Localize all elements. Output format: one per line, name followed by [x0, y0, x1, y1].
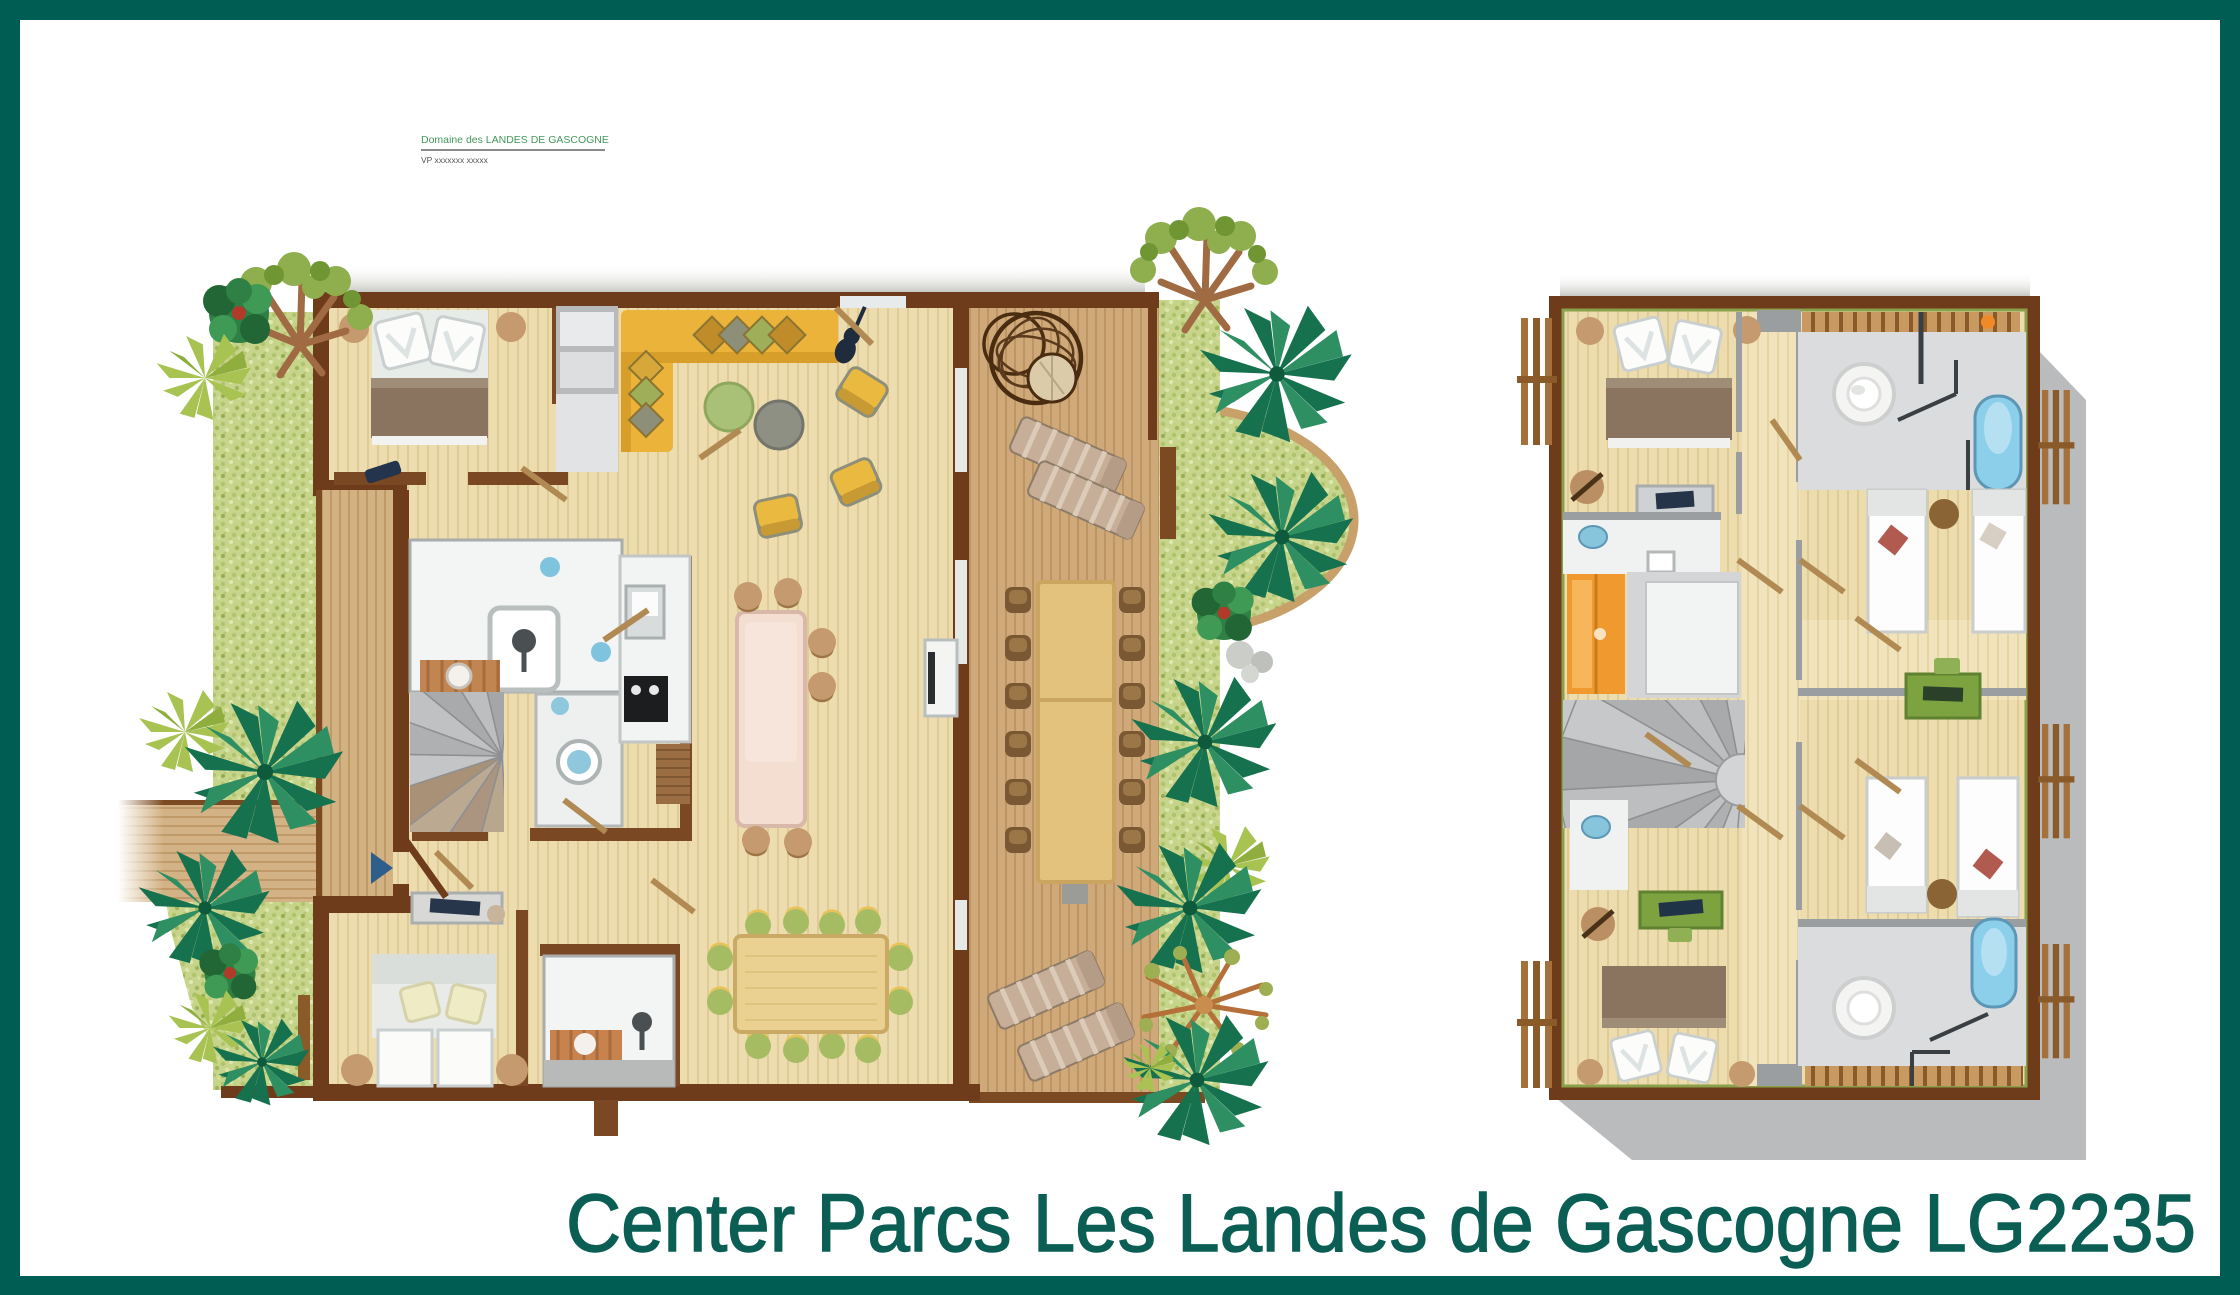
svg-text:VP xxxxxxx xxxxx: VP xxxxxxx xxxxx — [421, 155, 489, 165]
svg-text:Domaine des LANDES DE GASCOGNE: Domaine des LANDES DE GASCOGNE — [421, 134, 609, 146]
svg-text:Center Parcs Les Landes de Gas: Center Parcs Les Landes de Gascogne LG22… — [566, 1178, 2196, 1269]
